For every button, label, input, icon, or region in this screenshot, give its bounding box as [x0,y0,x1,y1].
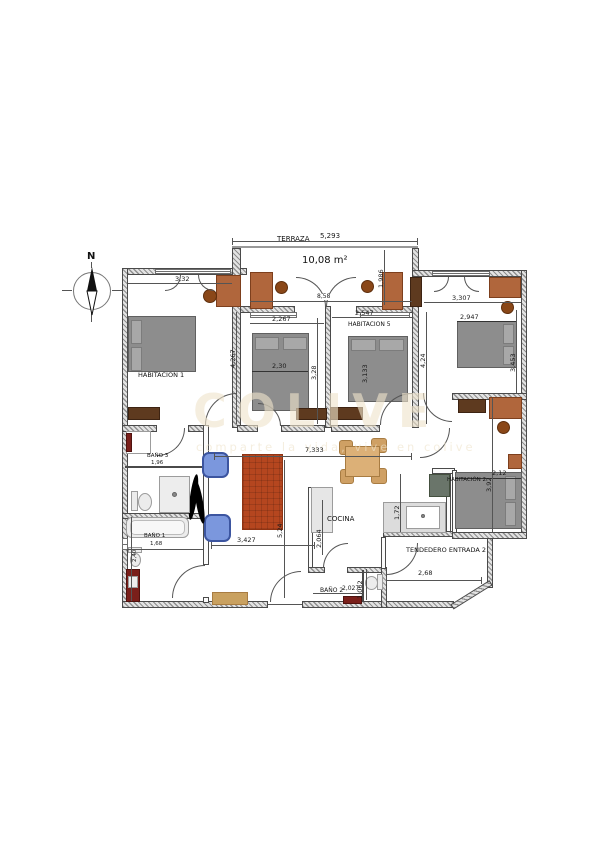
dim-cocina-side: 1,72 [394,506,401,520]
dim-line [366,569,367,600]
door-arc [157,428,185,456]
room-label-habitacion5: HABITACION 5 [348,322,391,328]
rug [242,454,283,530]
dim-line [211,545,315,546]
stool [203,289,217,303]
stool [497,421,510,434]
terrace-railing [232,246,418,248]
wall [302,601,454,608]
dim-line [332,317,412,318]
door-arc [326,277,356,307]
faucet [421,514,425,518]
dim-line [386,580,482,581]
room-label-bano1: BAÑO 1 [144,534,165,540]
pillow [131,347,142,371]
terrace-stool [275,281,288,294]
dim-terraza-wall: 8,58 [317,294,330,300]
pillow [351,339,376,351]
compass-tick-west [62,290,72,291]
pillow [503,324,514,344]
door-arc [323,543,348,568]
dim-bano1-width: 1,68 [150,542,162,548]
dim-mid-bed: 2,30 [272,363,286,370]
dim-h5-width: 2,547 [355,310,374,317]
dim-line [128,283,232,284]
room-label-bano3: BAÑO 3 [147,454,168,460]
window-shutter-arc [464,277,479,292]
dim-h1-width: 3,32 [175,276,189,283]
pillow [283,337,307,350]
shelf [508,454,522,469]
sink [128,576,138,588]
window [155,269,231,274]
compass-needle-icon [84,265,100,317]
dim-line [492,398,493,532]
window-shutter-arc [198,275,214,291]
dim-line [214,456,412,457]
dim-salon-lower: 3,427 [237,537,256,544]
door-arc [172,565,205,598]
dim-salon-width: 7,333 [305,447,324,454]
toilet-bowl [138,493,152,511]
wall [452,532,527,539]
dim-mid-depth: 3,28 [311,366,318,380]
pillow [379,339,404,351]
dim-h5-bed: 3,133 [362,364,369,383]
wall [125,466,205,468]
dim-tick [232,238,233,245]
dim-bano2-depth: 1,062 [357,580,364,599]
dim-line [457,321,517,322]
wardrobe [410,277,422,307]
window [432,271,490,276]
dim-tick [417,238,418,245]
dim-tick [386,577,387,584]
dim-tick [411,453,412,460]
dim-line [284,460,285,598]
room-label-terraza: TERRAZA [277,236,310,243]
terrace-bench [382,272,403,310]
desk [216,275,241,307]
shower-drain [172,492,177,497]
dim-h2-depth: 3,92 [486,478,493,492]
dim-line [250,301,412,302]
room-label-cocina: COCINA [327,516,354,523]
dim-tick [214,453,215,460]
pillow [505,502,516,526]
dim-h5-hall: 4,24 [420,354,427,368]
desk [489,397,522,419]
wall-diagonal [450,580,492,609]
pillow [505,476,516,500]
toilet-tank [131,491,138,511]
dim-mid-width: 2,267 [272,316,291,323]
dim-cocina-depth: 2,064 [316,529,323,548]
compass-tick-east [112,290,122,291]
dim-tr-width: 3,307 [452,295,471,302]
bench [212,592,248,605]
dim-tendedero-width: 2,68 [418,570,432,577]
dim-tr-bed: 2,947 [460,314,479,321]
window-shutter-arc [434,277,449,292]
watermark-logo: COLIVE [193,384,439,438]
dim-h2-width: 2,12 [492,470,506,477]
compass-north-label: N [87,252,95,262]
door-arc [296,277,326,307]
terrace-stool [361,280,374,293]
dim-tick [481,577,482,584]
room-label-habitacion1: HABITACION 1 [138,372,184,379]
room-label-tendedero: TENDEDERO ENTRADA 2 [406,547,486,554]
desk [458,399,486,413]
pillow [255,337,279,350]
dim-bano3-width: 1,96 [151,461,163,467]
dresser [128,407,160,420]
dim-line [250,323,324,324]
dim-salon-depth: 5,24 [277,524,284,538]
pillow [131,320,142,344]
dim-bano1-depth: 2,40 [133,550,139,562]
dim-terraza-depth: 1,986 [378,269,385,288]
terraza-area-label: 10,08 m² [302,256,348,266]
vanity-cabinet [126,433,132,452]
armchair [204,514,231,542]
dim-line [424,302,521,303]
dim-line [400,474,401,532]
dim-tr-depth: 3,453 [510,353,517,372]
desk [489,277,521,298]
terrace-bench [250,272,273,309]
dim-terraza-width: 5,293 [320,233,340,240]
room-label-habitacion2: HABITACIÓN 2 [447,478,486,484]
dim-tick [211,542,212,549]
dim-line [252,371,308,372]
dim-line [516,310,517,393]
watermark-tagline: comparte la vida, vive en colive [196,440,476,454]
door-threshold [268,604,302,605]
dim-line [232,241,418,242]
dim-h1-depth: 4,267 [230,349,237,368]
room-label-bano2: BAÑO 2 [320,588,343,594]
door-arc [270,571,301,602]
floor-plan: COLIVE comparte la vida, vive en colive … [0,0,600,849]
